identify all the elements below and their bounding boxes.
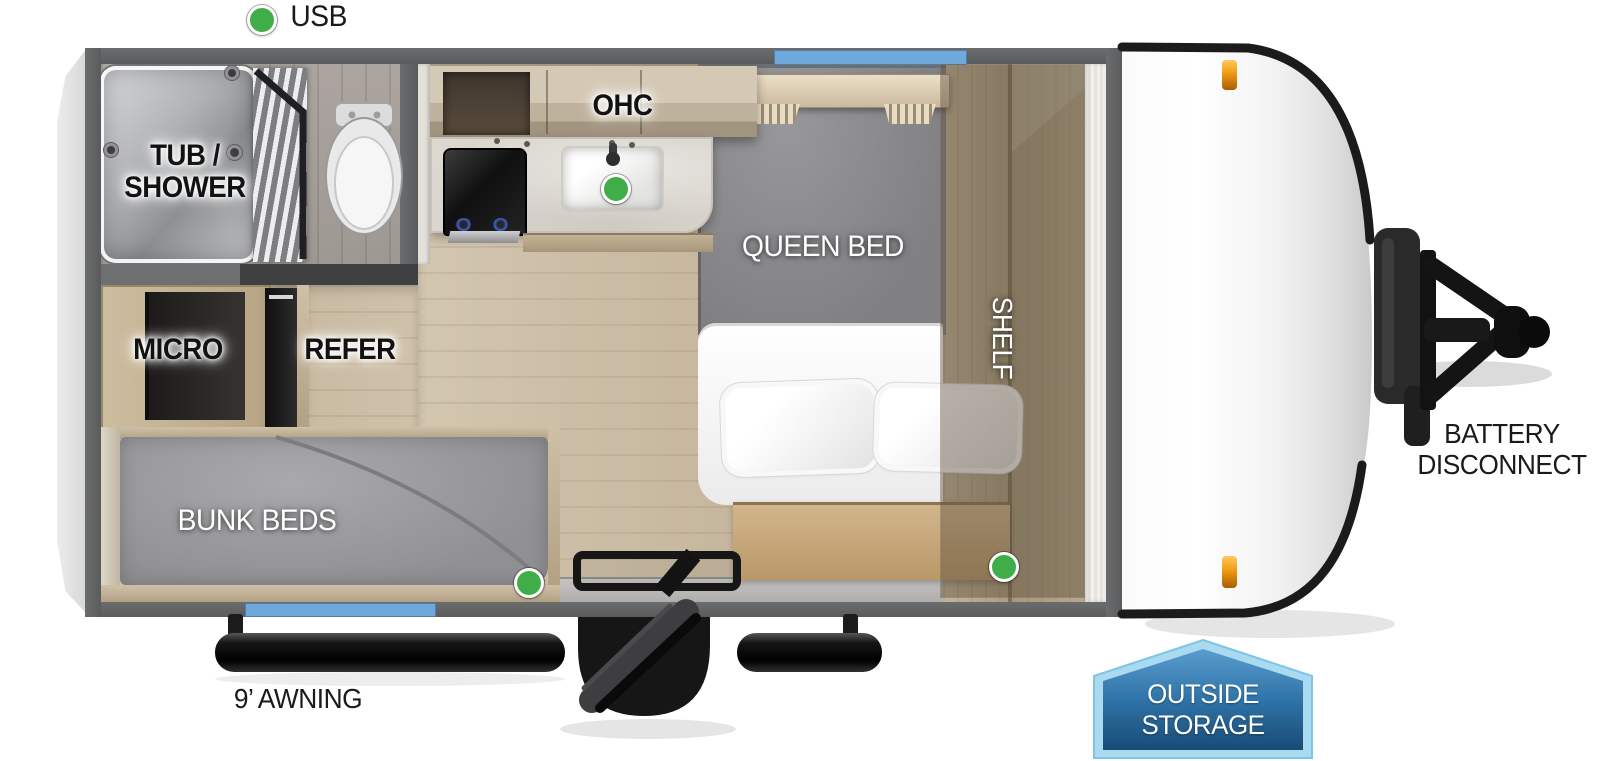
queen-bed-label: QUEEN BED [738, 231, 907, 263]
usb-indicator-bedroom [989, 552, 1019, 582]
storage-line1: OUTSIDE [1107, 679, 1299, 710]
floorplan-canvas: USB TUB / SHOWER OHC QUEEN BED SHELF MIC… [0, 0, 1600, 761]
battery-line2: DISCONNECT [1410, 449, 1594, 480]
battery-line1: BATTERY [1410, 418, 1594, 449]
marker-light-bottom [1222, 556, 1237, 588]
tub-shower-label: TUB / SHOWER [111, 140, 258, 204]
shelf-label: SHELF [986, 272, 1018, 404]
usb-indicator-legend [247, 5, 277, 35]
tub-shower-line1: TUB / [111, 140, 258, 172]
tub-shower-line2: SHOWER [111, 172, 258, 204]
shower-door-frame [256, 71, 303, 259]
step-shadow [560, 719, 736, 739]
hitch [1374, 228, 1550, 446]
ohc-label: OHC [583, 90, 661, 122]
storage-line2: STORAGE [1107, 710, 1299, 741]
outside-storage-label: OUTSIDE STORAGE [1107, 679, 1299, 741]
awning-tube-right [737, 633, 882, 672]
front-cap [1122, 47, 1372, 614]
awning [215, 614, 882, 672]
coupler-ball [1518, 316, 1550, 348]
detail-layer [0, 0, 1600, 761]
entry-step [578, 606, 710, 716]
marker-light-top [1222, 60, 1237, 90]
faucet [606, 143, 620, 166]
micro-label: MICRO [132, 334, 224, 366]
awning-tube-left [215, 633, 565, 672]
bunk-beds-label: BUNK BEDS [172, 505, 341, 537]
awning-label: 9’ AWNING [227, 683, 370, 714]
usb-indicator-sink [601, 174, 631, 204]
usb-legend-label: USB [290, 1, 365, 33]
toilet [326, 103, 402, 234]
battery-disconnect-label: BATTERY DISCONNECT [1410, 418, 1594, 480]
refer-label: REFER [304, 334, 396, 366]
usb-indicator-bunk [514, 568, 544, 598]
